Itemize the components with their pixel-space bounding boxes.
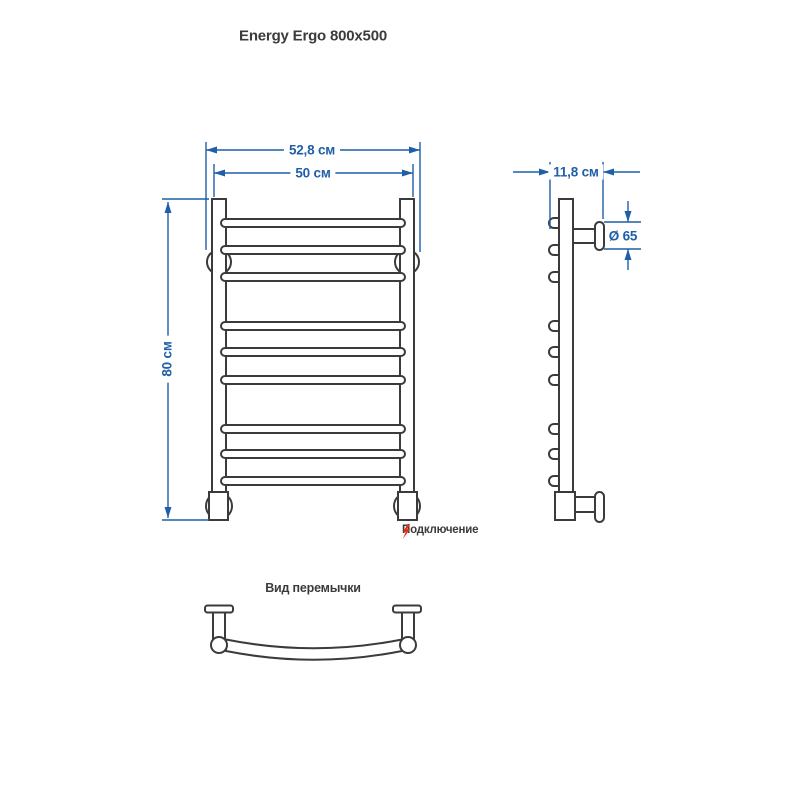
- bracket-arm-top: [571, 229, 598, 243]
- bridge-cap-right: [393, 606, 421, 613]
- front-dimension-arrowheads: [165, 147, 421, 519]
- bridge-joint-right: [400, 637, 416, 653]
- bridge-view-drawing: [205, 606, 421, 660]
- side-post: [559, 199, 573, 492]
- bridge-view-title: Вид перемычки: [265, 581, 361, 595]
- dimension-bracket-diameter: Ø 65: [607, 229, 639, 244]
- wall-flange-top: [595, 222, 604, 250]
- left-foot: [209, 492, 228, 520]
- wall-flange-bottom: [595, 492, 604, 522]
- towel-rail-diagram: [0, 0, 800, 800]
- dimension-height: 80 см: [160, 335, 175, 382]
- bridge-cap-left: [205, 606, 233, 613]
- bridge-joint-left: [211, 637, 227, 653]
- dimension-depth: 11,8 см: [548, 165, 603, 180]
- side-view-drawing: [549, 199, 604, 522]
- connection-label-group: Подключение: [402, 524, 478, 536]
- front-view-drawing: [206, 199, 420, 520]
- right-post: [400, 199, 414, 492]
- right-foot: [398, 492, 417, 520]
- lightning-icon: [402, 524, 411, 539]
- rungs: [221, 219, 405, 485]
- dimension-inner-width: 50 см: [290, 166, 335, 181]
- left-post: [212, 199, 226, 492]
- connection-label: Подключение: [402, 524, 478, 536]
- dimension-outer-width: 52,8 см: [284, 143, 340, 158]
- page-title: Energy Ergo 800x500: [239, 28, 387, 45]
- side-foot: [555, 492, 575, 520]
- curved-rung: [226, 640, 402, 660]
